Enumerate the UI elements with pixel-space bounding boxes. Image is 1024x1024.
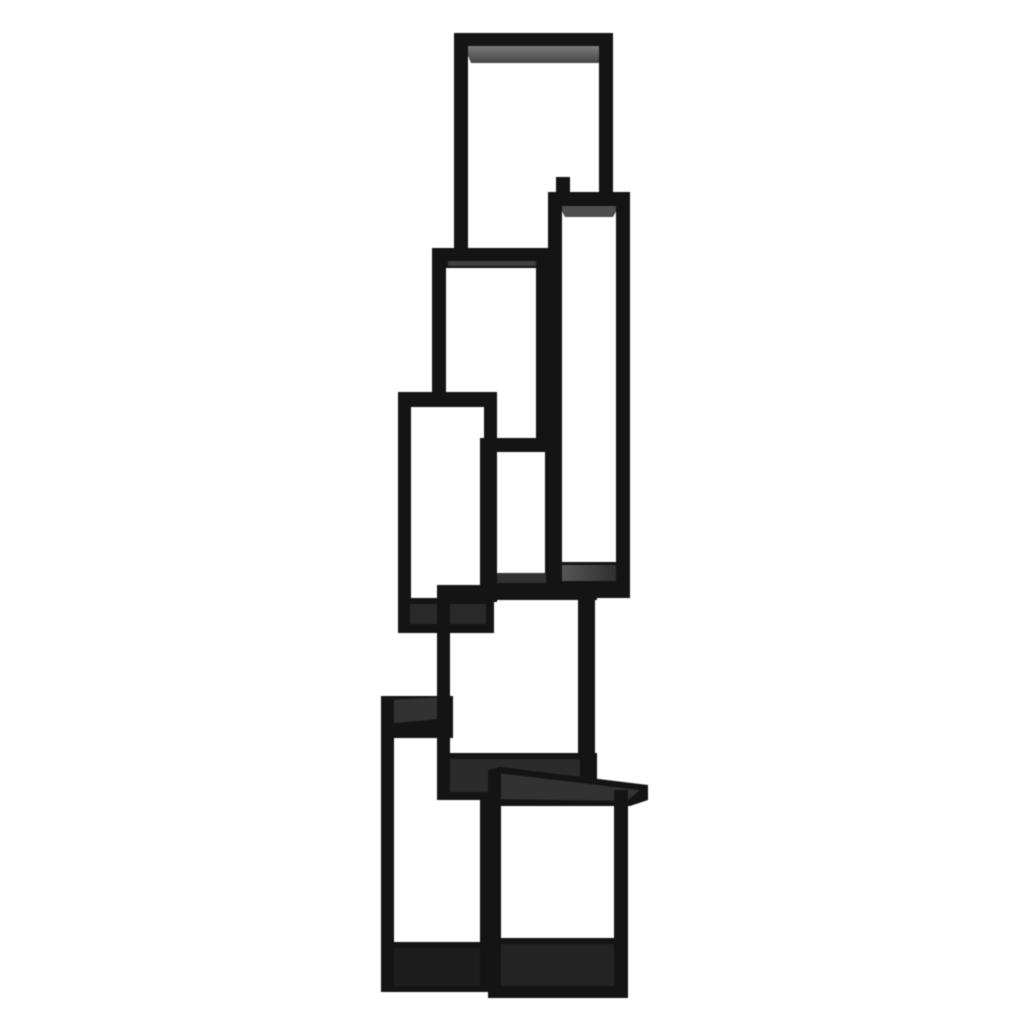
box-d-right-wall (484, 392, 497, 602)
box-c-top-face-line (448, 261, 538, 266)
box-b-bottom-shelf-face (562, 565, 616, 581)
box-a-top-inner-face (464, 46, 608, 63)
box-a-back-leg-stub (556, 177, 570, 193)
box-c-right-leg (536, 248, 549, 452)
box-b-top-inner-face (559, 206, 619, 217)
box-d-top-bar (398, 392, 497, 407)
box-a-top-bar (456, 33, 613, 47)
box-c2-right-wall (545, 438, 558, 590)
bookcase-shapes (381, 33, 648, 998)
box-a-left-leg (454, 33, 468, 251)
box-d-left-wall (398, 392, 411, 633)
photo-stage: Tall black modern bookcase / étagère mad… (0, 0, 1024, 1024)
box-e-top-bar (437, 585, 597, 600)
box-g-bottom-face (501, 944, 614, 986)
box-c-left-leg (432, 248, 446, 398)
box-f-bottom-face (394, 948, 480, 986)
bookcase-product-photo: Tall black modern bookcase / étagère mad… (0, 0, 1024, 1024)
box-a-right-leg (599, 33, 613, 193)
box-b-right-wall (616, 192, 630, 598)
